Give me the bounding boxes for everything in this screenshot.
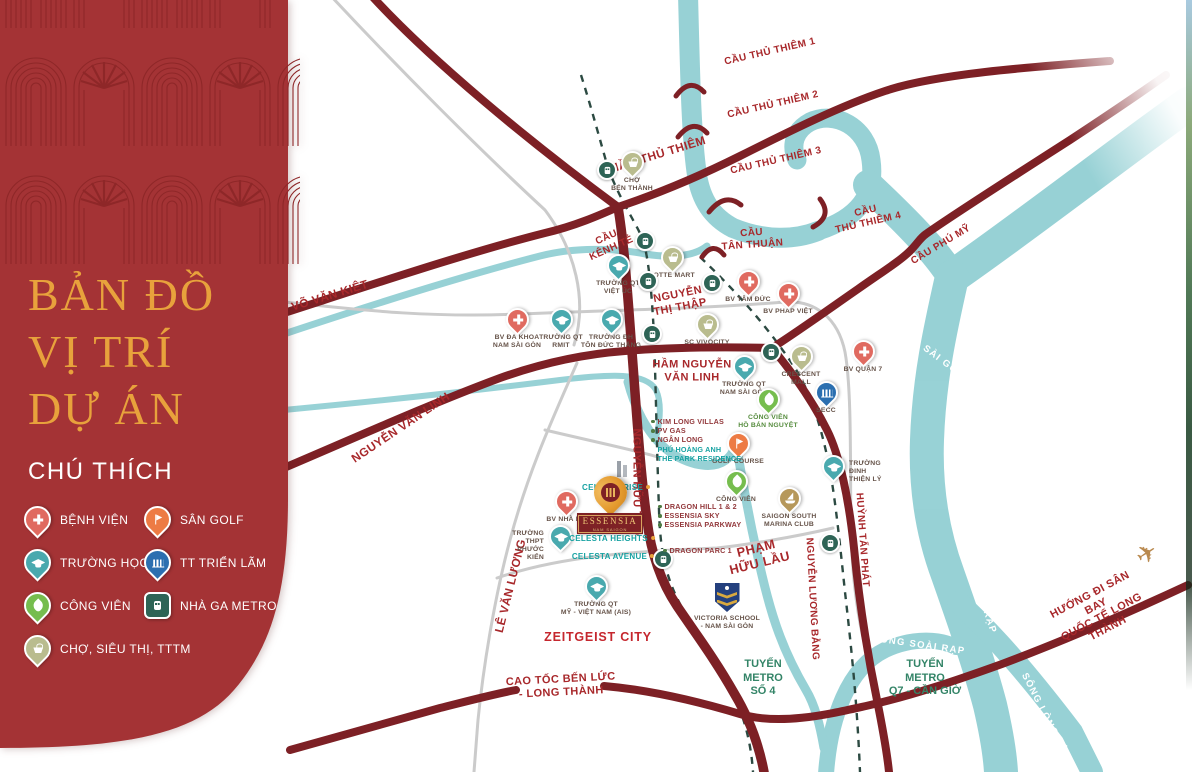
legend-label: SÂN GOLF bbox=[180, 513, 244, 527]
page-title: BẢN ĐỒ VỊ TRÍ DỰ ÁN bbox=[28, 266, 215, 437]
list-item: PHÚ HOÀNG ANH bbox=[651, 445, 741, 454]
metro-station-icon bbox=[820, 533, 840, 553]
project-subtitle: NAM SAIGON bbox=[583, 527, 638, 532]
minor-roads bbox=[284, 0, 866, 772]
nearby-projects-list: DRAGON PARC 1 bbox=[663, 546, 732, 555]
legend-item-tt-trien-lam: TT TRIỂN LÃM bbox=[144, 549, 284, 576]
metro-station-icon bbox=[638, 271, 658, 291]
list-item: THE PARK RESIDENCE bbox=[651, 454, 741, 463]
park-pin-icon bbox=[18, 586, 56, 624]
sidebar: BẢN ĐỒ VỊ TRÍ DỰ ÁN CHÚ THÍCH BỆNH VIỆN … bbox=[0, 0, 300, 772]
metro-station-icon bbox=[642, 324, 662, 344]
market-pin-icon bbox=[18, 629, 56, 667]
title-line: BẢN ĐỒ bbox=[28, 269, 215, 320]
metro-label-line-4: TUYẾN METRO SỐ 4 bbox=[743, 658, 783, 699]
hospital-pin-icon bbox=[18, 500, 56, 538]
metro-label-q7-can-gio: TUYẾN METRO Q7 - CẦN GIỜ bbox=[889, 658, 961, 699]
project-name-plate: ESSENSIA NAM SAIGON bbox=[577, 513, 644, 534]
metro-pin-icon bbox=[144, 592, 171, 619]
title-line: DỰ ÁN bbox=[28, 383, 185, 434]
highrise-icon bbox=[617, 461, 629, 477]
building-icon bbox=[606, 488, 615, 497]
legend-item-nha-ga-metro: NHÀ GA METRO bbox=[144, 592, 284, 619]
metro-station-icon bbox=[702, 273, 722, 293]
legend-label: TT TRIỂN LÃM bbox=[180, 556, 266, 570]
golf-pin-icon bbox=[138, 500, 176, 538]
metro-station-icon bbox=[635, 231, 655, 251]
project-marker-essensia: ESSENSIA NAM SAIGON bbox=[545, 476, 675, 536]
legend: BỆNH VIỆN SÂN GOLF TRƯỜNG HỌC TT TRIỂN L… bbox=[24, 498, 284, 670]
legend-label: TRƯỜNG HỌC bbox=[60, 556, 149, 570]
legend-label: BỆNH VIỆN bbox=[60, 513, 128, 527]
project-label-celesta-avenue: CELESTA AVENUE bbox=[572, 552, 654, 561]
photo-edge-strip bbox=[1186, 0, 1192, 690]
road-label-cau-tan-thuan: CẦU TÂN THUẬN bbox=[720, 225, 783, 252]
legend-item-cong-vien: CÔNG VIÊN bbox=[24, 592, 144, 619]
school-pin-icon bbox=[18, 543, 56, 581]
legend-item-benh-vien: BỆNH VIỆN bbox=[24, 506, 144, 533]
legend-label: CHỢ, SIÊU THỊ, TTTM bbox=[60, 642, 191, 656]
metro-station-icon bbox=[761, 342, 781, 362]
legend-item-cho-sieu-thi: CHỢ, SIÊU THỊ, TTTM bbox=[24, 635, 144, 662]
legend-item-san-golf: SÂN GOLF bbox=[144, 506, 284, 533]
title-line: VỊ TRÍ bbox=[28, 326, 173, 377]
metro-station-icon bbox=[597, 160, 617, 180]
legend-title: CHÚ THÍCH bbox=[28, 458, 173, 486]
legend-label: NHÀ GA METRO bbox=[180, 599, 277, 613]
list-item: DRAGON PARC 1 bbox=[663, 546, 732, 555]
exhibition-pin-icon bbox=[138, 543, 176, 581]
list-item: KIM LONG VILLAS bbox=[651, 417, 741, 426]
legend-label: CÔNG VIÊN bbox=[60, 599, 131, 613]
legend-item-truong-hoc: TRƯỜNG HỌC bbox=[24, 549, 144, 576]
list-item: PV GAS bbox=[651, 426, 741, 435]
project-name: ESSENSIA bbox=[583, 516, 638, 526]
location-map-page: VÕ VĂN KIỆT NGUYỄN VĂN LINH CẦU KÊNH TẺ … bbox=[0, 0, 1192, 772]
essensia-pin-icon bbox=[587, 469, 634, 516]
list-item: NGÂN LONG bbox=[651, 435, 741, 444]
road-label-ham-nguyen-van-linh: HẦM NGUYỄN VĂN LINH bbox=[652, 358, 731, 383]
nearby-projects-list: KIM LONG VILLAS PV GAS NGÂN LONG PHÚ HOÀ… bbox=[651, 417, 741, 463]
area-label-zeitgeist-city: ZEITGEIST CITY bbox=[544, 630, 652, 644]
